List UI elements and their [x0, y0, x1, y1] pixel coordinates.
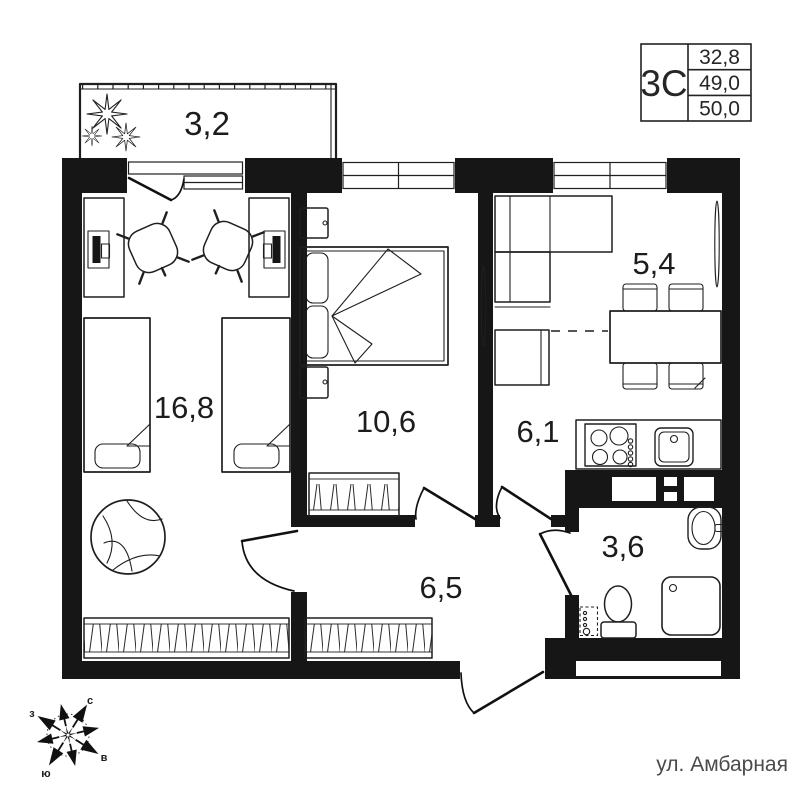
furniture-bedroom-2 — [300, 208, 486, 398]
vent-duct-1 — [612, 477, 656, 501]
wall-left — [62, 158, 82, 679]
room-label-balcony: 3,2 — [184, 105, 230, 142]
vent-duct-3 — [664, 477, 677, 486]
kitchen-counter — [576, 420, 721, 469]
compass-label-south: ю — [41, 768, 50, 780]
bathroom-fixtures — [580, 507, 724, 638]
compass-label-west: з — [29, 708, 35, 720]
room-label-kitchen-living: 5,4 — [632, 246, 675, 281]
compass-rose: с в ю з — [23, 690, 114, 781]
shower-tray-icon — [662, 577, 720, 635]
tv-cabinet — [495, 330, 549, 385]
niche-under-bathroom — [576, 661, 721, 676]
beanbag-icon — [91, 500, 165, 574]
radiator-icon — [715, 201, 719, 287]
sink-icon — [655, 428, 693, 466]
vent-duct-4 — [664, 492, 677, 501]
compass-label-north: с — [87, 695, 93, 707]
wardrobe-bedroom2 — [309, 473, 399, 516]
room-label-hall: 6,1 — [516, 414, 559, 449]
washing-machine-icon — [580, 607, 598, 636]
wall-bedroom2-kitchen — [478, 193, 493, 515]
room-label-corridor: 6,5 — [419, 570, 462, 605]
floorplan-canvas: 3,2 16,8 10,6 6,1 5,4 6,5 3,6 3С 32,8 49… — [0, 0, 800, 799]
door-bedroom1 — [242, 531, 297, 591]
room-label-bedroom-2: 10,6 — [356, 404, 416, 439]
stove-icon — [585, 424, 636, 467]
compass-label-east: в — [101, 752, 108, 764]
office-chair-icon — [191, 210, 264, 284]
single-bed-right — [222, 318, 290, 472]
wall-right — [722, 158, 740, 679]
door-bathroom — [540, 530, 571, 595]
pillow — [306, 306, 328, 358]
double-bed-icon — [300, 247, 448, 365]
desk-right — [249, 198, 289, 297]
door-bedroom2 — [416, 488, 475, 519]
area-value-3: 50,0 — [699, 98, 740, 121]
furniture-bedroom-1 — [84, 198, 290, 574]
corner-sofa-icon — [495, 196, 612, 307]
washbasin-icon — [688, 507, 724, 549]
area-value-2: 49,0 — [699, 72, 740, 95]
wall-bathroom-bottom — [545, 638, 740, 661]
dining-table-icon — [610, 284, 721, 389]
chair — [623, 284, 657, 311]
chair — [669, 284, 703, 311]
plant-icon — [82, 94, 140, 151]
room-label-bathroom: 3,6 — [601, 529, 644, 564]
wardrobe-corridor — [305, 618, 432, 658]
toilet-icon — [601, 586, 636, 638]
wall-bedroom1-bedroom2 — [291, 193, 307, 527]
room-label-bedroom-1: 16,8 — [154, 390, 214, 425]
wall-bathroom-left-bottom — [565, 595, 579, 640]
office-chair-icon — [117, 212, 190, 286]
wall-bathroom-left-top — [565, 470, 579, 532]
pillow — [306, 253, 328, 303]
wardrobe-bedroom1 — [84, 618, 289, 658]
area-value-1: 32,8 — [699, 46, 740, 69]
door-hall — [496, 487, 551, 519]
pillow — [234, 444, 279, 468]
desk-left — [84, 198, 124, 297]
title-block: 3С 32,8 49,0 50,0 — [640, 44, 751, 121]
pillow — [95, 444, 140, 468]
single-bed-left — [84, 318, 150, 472]
plan-code: 3С — [640, 63, 687, 104]
blanket-fold — [332, 316, 372, 363]
blanket-fold — [332, 249, 421, 316]
wall-stub-hall-left — [475, 515, 500, 527]
vent-duct-2 — [684, 477, 714, 501]
chair — [623, 363, 657, 389]
opening-entrance — [460, 661, 545, 679]
wall-bedroom2-corridor — [297, 515, 415, 527]
street-label: ул. Амбарная — [656, 753, 788, 776]
floorplan-page: 3,2 16,8 10,6 6,1 5,4 6,5 3,6 3С 32,8 49… — [0, 0, 800, 799]
